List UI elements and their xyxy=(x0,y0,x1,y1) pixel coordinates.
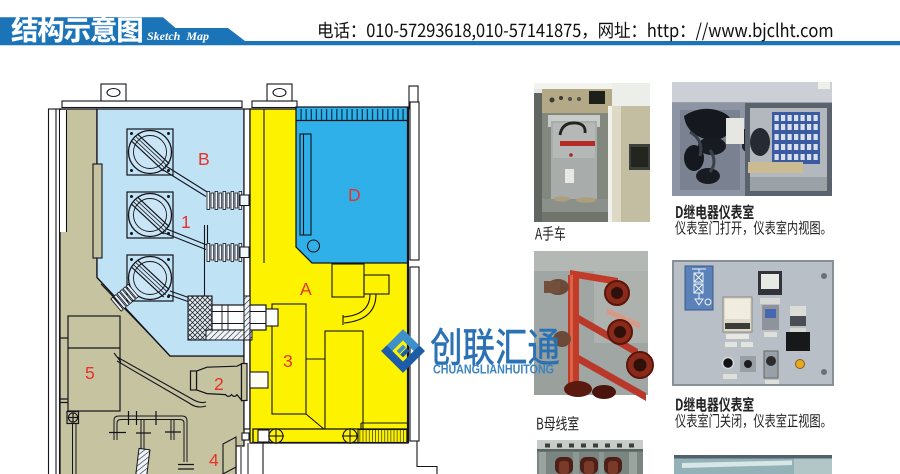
svg-text:A: A xyxy=(300,279,312,299)
svg-text:D: D xyxy=(348,185,361,205)
svg-text:4: 4 xyxy=(209,450,219,470)
svg-text:B: B xyxy=(198,149,210,169)
svg-text:3: 3 xyxy=(283,351,293,371)
svg-text:CHUANGLIANHUITONG: CHUANGLIANHUITONG xyxy=(433,363,554,377)
svg-text:2: 2 xyxy=(214,374,224,394)
svg-text:1: 1 xyxy=(181,212,191,232)
svg-text:Sketch Map: Sketch Map xyxy=(147,29,209,43)
svg-text:5: 5 xyxy=(85,363,95,383)
